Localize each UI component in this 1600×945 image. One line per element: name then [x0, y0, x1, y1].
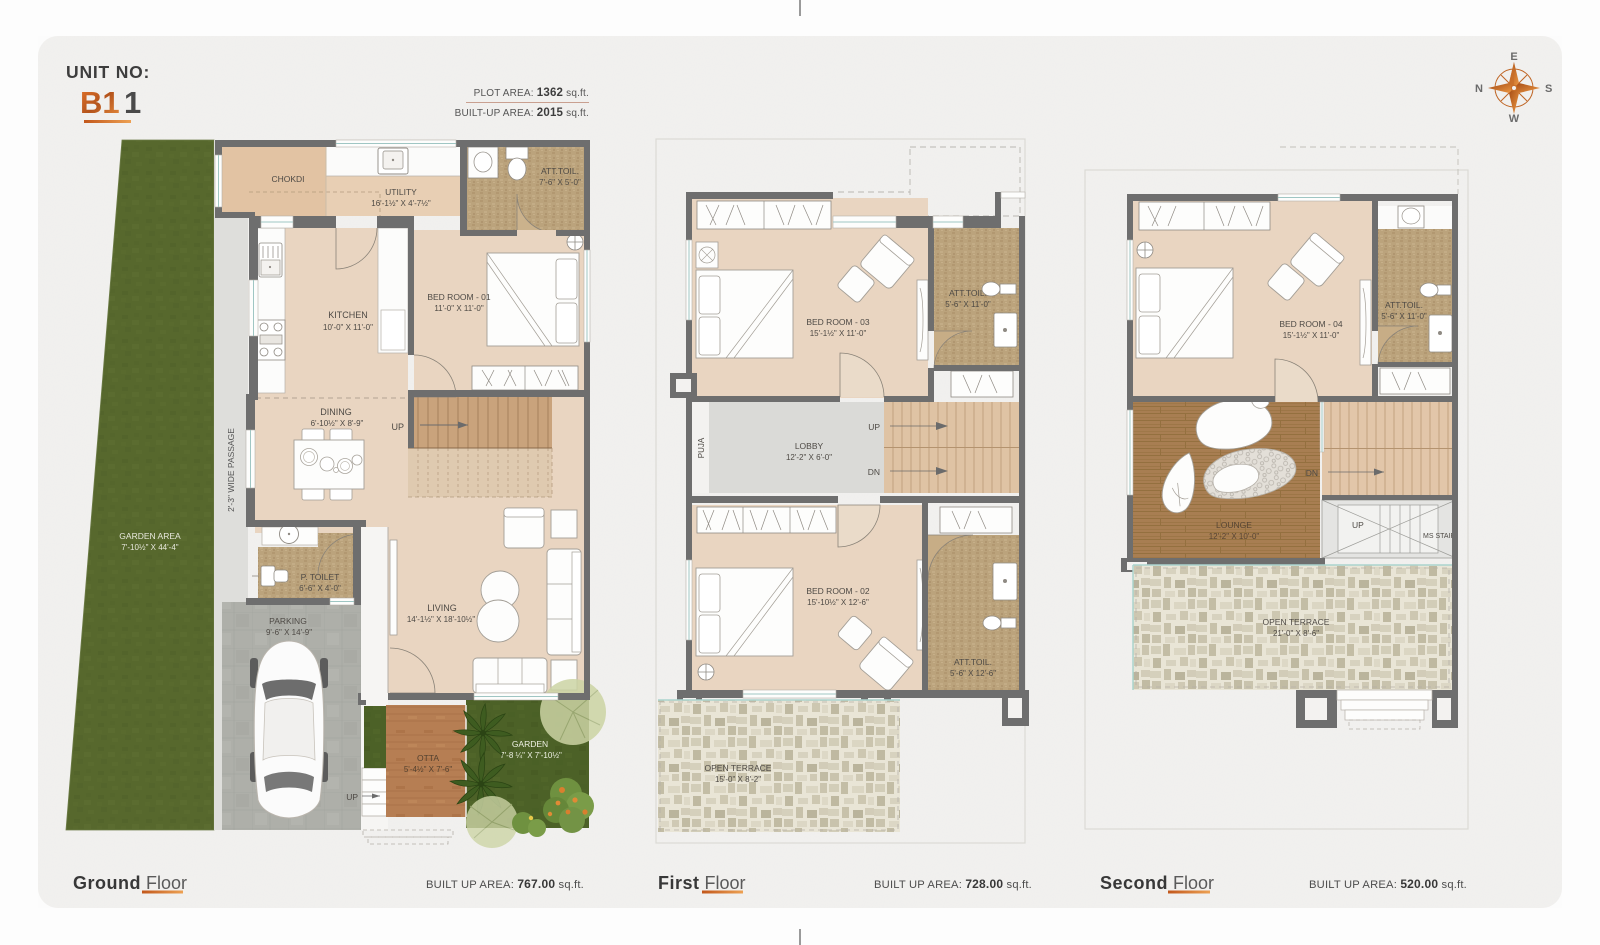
- svg-text:GARDEN AREA: GARDEN AREA: [119, 531, 181, 541]
- svg-text:S: S: [1545, 83, 1552, 95]
- svg-text:E: E: [1510, 51, 1517, 63]
- svg-text:BED ROOM - 04: BED ROOM - 04: [1279, 319, 1343, 329]
- svg-text:UP: UP: [868, 422, 880, 432]
- svg-text:PUJA: PUJA: [697, 437, 706, 458]
- svg-text:15'-1½" X 11'-0": 15'-1½" X 11'-0": [1283, 331, 1340, 340]
- svg-text:5'-6" X 12'-6": 5'-6" X 12'-6": [950, 669, 996, 678]
- svg-text:BUILT UP AREA: 728.00 sq.ft.: BUILT UP AREA: 728.00 sq.ft.: [874, 877, 1032, 891]
- svg-text:MS STAIR: MS STAIR: [1423, 533, 1456, 540]
- svg-text:BED ROOM - 02: BED ROOM - 02: [806, 586, 870, 596]
- svg-text:PARKING: PARKING: [269, 616, 307, 626]
- svg-text:ATT.TOIL.: ATT.TOIL.: [949, 288, 987, 298]
- svg-text:OPEN TERRACE: OPEN TERRACE: [1263, 617, 1330, 627]
- svg-text:N: N: [1475, 83, 1483, 95]
- svg-text:ATT.TOIL.: ATT.TOIL.: [541, 166, 579, 176]
- svg-text:2'-3" WIDE PASSAGE: 2'-3" WIDE PASSAGE: [226, 428, 236, 512]
- svg-text:5'-4½" X 7'-6": 5'-4½" X 7'-6": [404, 765, 452, 774]
- svg-text:B1: B1: [80, 85, 120, 120]
- svg-text:OTTA: OTTA: [417, 753, 439, 763]
- svg-text:5'-6" X 11'-0": 5'-6" X 11'-0": [945, 300, 991, 309]
- svg-text:BED ROOM - 01: BED ROOM - 01: [427, 292, 491, 302]
- svg-text:UP: UP: [346, 792, 358, 802]
- svg-text:16'-1½" X 4'-7½": 16'-1½" X 4'-7½": [371, 199, 431, 208]
- svg-text:11'-0" X 11'-0": 11'-0" X 11'-0": [434, 304, 484, 313]
- svg-text:9'-6" X 14'-9": 9'-6" X 14'-9": [266, 628, 312, 637]
- svg-text:OPEN TERRACE: OPEN TERRACE: [705, 763, 772, 773]
- svg-text:KITCHEN: KITCHEN: [328, 310, 368, 320]
- svg-text:7'-10½" X 44'-4": 7'-10½" X 44'-4": [121, 543, 178, 552]
- svg-text:7'-6" X 5'-0": 7'-6" X 5'-0": [539, 178, 581, 187]
- svg-text:7'-8 ¼" X 7'-10½": 7'-8 ¼" X 7'-10½": [500, 751, 562, 760]
- svg-text:6'-6" X 4'-0": 6'-6" X 4'-0": [299, 584, 341, 593]
- svg-text:12'-2" X 6'-0": 12'-2" X 6'-0": [786, 453, 832, 462]
- svg-text:DINING: DINING: [320, 407, 352, 417]
- svg-text:BUILT UP AREA: 520.00 sq.ft.: BUILT UP AREA: 520.00 sq.ft.: [1309, 877, 1467, 891]
- svg-text:LOBBY: LOBBY: [795, 441, 824, 451]
- svg-text:GARDEN: GARDEN: [512, 739, 548, 749]
- svg-text:10'-0" X 11'-0": 10'-0" X 11'-0": [323, 323, 373, 332]
- svg-text:BED ROOM - 03: BED ROOM - 03: [806, 317, 870, 327]
- svg-text:15'-10½" X 12'-6": 15'-10½" X 12'-6": [807, 598, 869, 607]
- svg-text:PLOT AREA: 1362 sq.ft.: PLOT AREA: 1362 sq.ft.: [474, 87, 589, 99]
- svg-text:UTILITY: UTILITY: [385, 187, 417, 197]
- svg-text:UP: UP: [391, 422, 404, 432]
- svg-text:Ground Floor: Ground Floor: [73, 873, 187, 893]
- svg-text:Second Floor: Second Floor: [1100, 873, 1214, 893]
- svg-text:LOUNGE: LOUNGE: [1216, 520, 1252, 530]
- svg-text:DN: DN: [1306, 468, 1318, 478]
- svg-text:6'-10½" X 8'-9": 6'-10½" X 8'-9": [311, 419, 364, 428]
- svg-text:15'-1½" X 11'-0": 15'-1½" X 11'-0": [810, 329, 867, 338]
- svg-text:BUILT UP AREA: 767.00 sq.ft.: BUILT UP AREA: 767.00 sq.ft.: [426, 877, 584, 891]
- svg-text:21'-0" X 8'-6": 21'-0" X 8'-6": [1273, 629, 1319, 638]
- svg-text:ATT.TOIL.: ATT.TOIL.: [1385, 300, 1423, 310]
- svg-text:UNIT NO:: UNIT NO:: [66, 62, 150, 82]
- svg-text:CHOKDI: CHOKDI: [271, 174, 304, 184]
- svg-text:P. TOILET: P. TOILET: [301, 572, 340, 582]
- svg-text:14'-1½" X 18'-10½": 14'-1½" X 18'-10½": [407, 615, 475, 624]
- svg-text:LIVING: LIVING: [427, 603, 457, 613]
- svg-text:ATT.TOIL.: ATT.TOIL.: [954, 657, 992, 667]
- svg-text:12'-2" X 10'-0": 12'-2" X 10'-0": [1209, 532, 1260, 541]
- svg-text:5'-6" X 11'-0": 5'-6" X 11'-0": [1381, 312, 1427, 321]
- svg-text:DN: DN: [868, 467, 880, 477]
- svg-text:First Floor: First Floor: [658, 873, 746, 893]
- svg-text:UP: UP: [1352, 520, 1364, 530]
- svg-text:W: W: [1509, 113, 1520, 125]
- svg-text:BUILT-UP AREA: 2015 sq.ft.: BUILT-UP AREA: 2015 sq.ft.: [455, 107, 589, 119]
- svg-text:15'-0" X 8'-2": 15'-0" X 8'-2": [715, 775, 761, 784]
- svg-text:1: 1: [124, 85, 141, 120]
